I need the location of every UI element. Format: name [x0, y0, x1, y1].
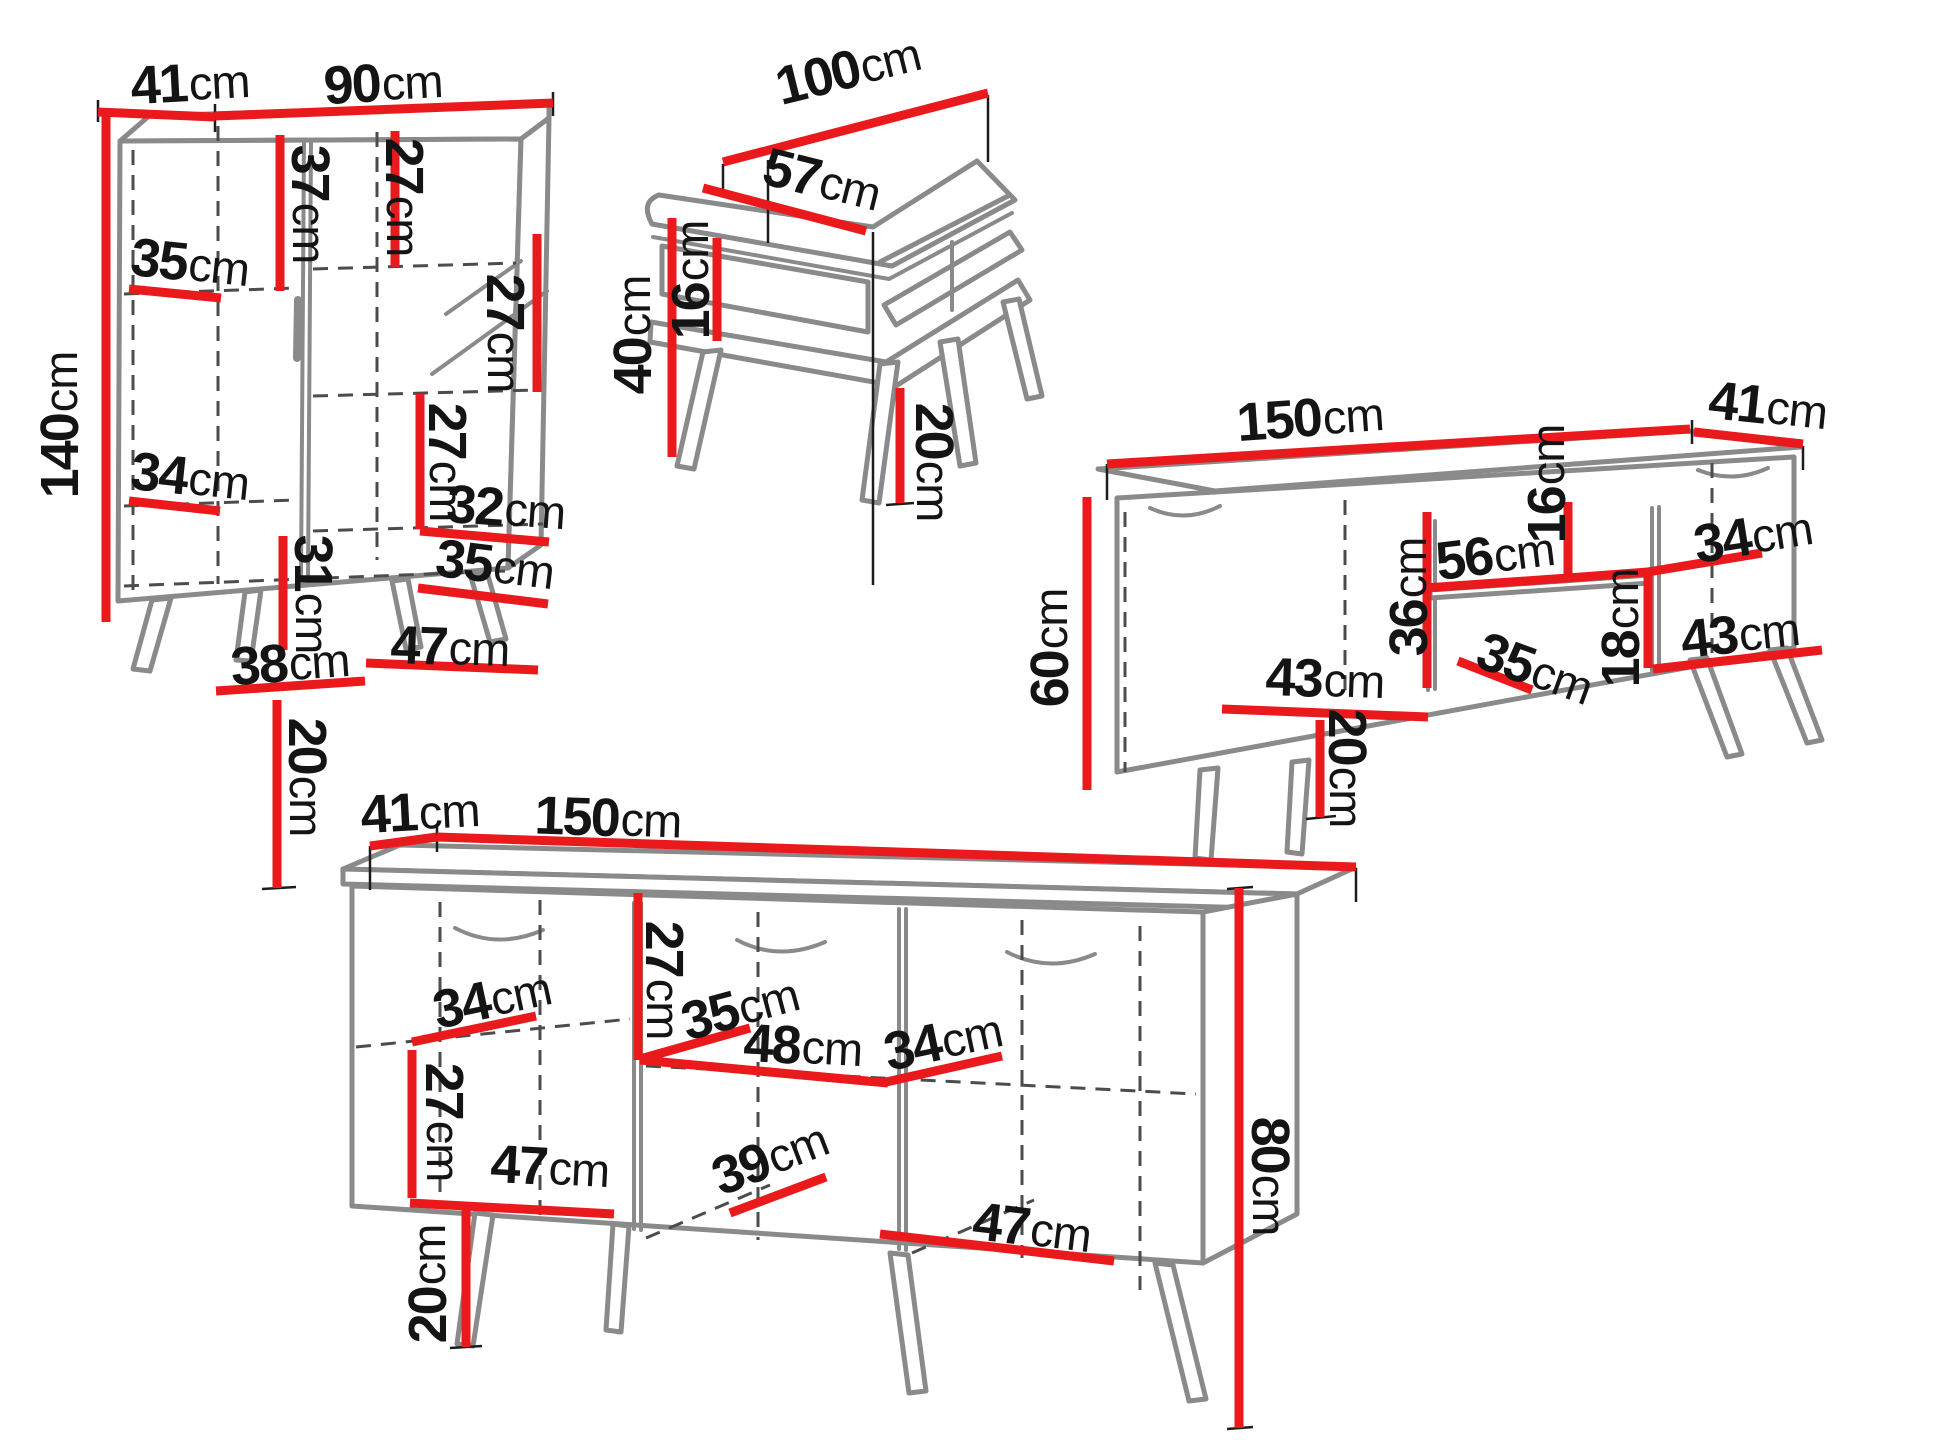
furniture-dimension-diagram: 41cm90cm140cm37cm27cm35cm27cm27cm34cm31c…: [0, 0, 1940, 1455]
dimension-label: 27cm: [374, 138, 434, 257]
dimension-label: 20cm: [1317, 709, 1377, 828]
dimension-label: 41cm: [129, 50, 251, 116]
dimension-label: 20cm: [904, 403, 964, 522]
dimension-label: 90cm: [322, 50, 444, 116]
dimension-label: 20cm: [398, 1225, 458, 1344]
sideboard-drawing: [343, 845, 1354, 1401]
dimension-label: 27cm: [475, 274, 535, 393]
tv-stand-leg: [1287, 760, 1309, 854]
dimension-label: 47cm: [489, 1134, 611, 1200]
dimension-label: 100cm: [770, 23, 927, 117]
cabinet-door-handle: [297, 300, 298, 358]
dimension-label: 140cm: [30, 352, 90, 499]
tv-stand-leg: [1690, 658, 1742, 757]
dimension-label: 36cm: [1379, 538, 1439, 657]
dimension-label: 150cm: [1235, 383, 1386, 453]
dimension-label: 43cm: [1265, 647, 1386, 711]
dimension-label: 80cm: [1240, 1117, 1300, 1236]
dimension-label: 18cm: [1591, 569, 1651, 688]
coffee-table-leg: [677, 350, 721, 469]
sideboard-leg: [1155, 1263, 1206, 1401]
dimension-label: 40cm: [603, 276, 663, 395]
dimension-label: 41cm: [359, 779, 481, 845]
dimension-label: 16cm: [661, 221, 721, 340]
tv-stand-leg: [1770, 648, 1822, 743]
dimension-label: 47cm: [390, 615, 511, 679]
coffee-table-leg: [1003, 299, 1042, 399]
dimension-label: 60cm: [1020, 589, 1080, 708]
diagram-canvas: 41cm90cm140cm37cm27cm35cm27cm27cm34cm31c…: [0, 0, 1940, 1455]
dimension-label: 41cm: [1706, 370, 1830, 442]
cabinet-leg: [133, 598, 171, 671]
sideboard-leg: [606, 1224, 629, 1332]
dimension-label: 37cm: [280, 145, 340, 264]
dimension-label: 20cm: [277, 718, 337, 837]
dimension-label: 48cm: [742, 1013, 864, 1079]
sideboard-leg: [890, 1253, 926, 1393]
tv-stand-leg: [1195, 768, 1218, 860]
dimension-label: 150cm: [534, 785, 683, 850]
dimension-label: 27cm: [414, 1063, 474, 1182]
